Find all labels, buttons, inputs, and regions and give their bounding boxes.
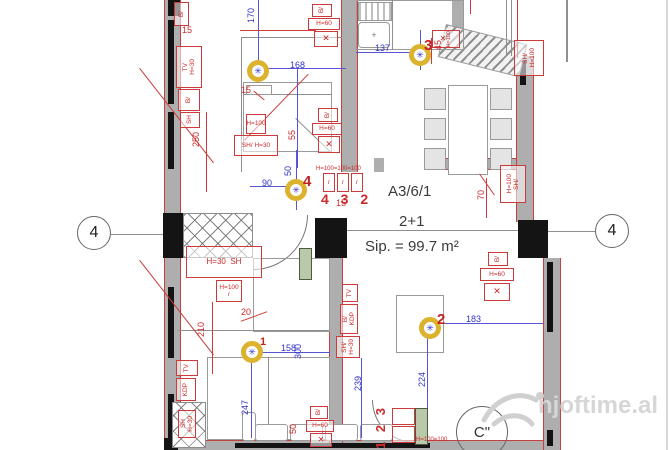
- h100-label: H=100: [446, 31, 452, 47]
- watermark-text: njoftime.al: [538, 392, 658, 420]
- h60-label: H=60: [316, 20, 332, 27]
- door-leaf-box: [392, 408, 415, 425]
- dining-table: [448, 85, 488, 175]
- h100-label: H=100: [246, 120, 265, 127]
- dim-red: 45: [434, 40, 443, 50]
- speaker-icon: ✕: [310, 433, 332, 447]
- annotation-box-h30-sh: H=30 SH: [186, 246, 262, 278]
- annotation-box-tv: TVH=30: [176, 46, 202, 88]
- dining-chair: [490, 88, 512, 110]
- dining-chair: [490, 118, 512, 140]
- h60-label: H=60: [489, 271, 505, 278]
- b-label: B/: [324, 112, 331, 118]
- dining-chair: [424, 88, 446, 110]
- grid-axis-line-right: [545, 231, 595, 232]
- dim-red: 250: [192, 132, 201, 147]
- dim-blue: 170: [247, 8, 256, 23]
- axis-number: 4: [608, 222, 617, 240]
- balcony-rail-line-2: [511, 0, 512, 56]
- window-right-1: [547, 262, 553, 332]
- b-label: B/: [342, 316, 349, 322]
- light-marker-bedroom: ✳: [247, 60, 269, 82]
- annotation-box-h60: H=60: [308, 18, 340, 30]
- hook-glyph: ɾ: [356, 179, 358, 186]
- sh-label: SH: [186, 115, 193, 124]
- dim-red: 50: [289, 424, 298, 434]
- window-left-1: [168, 20, 174, 104]
- h30-label: H=30: [254, 142, 270, 149]
- apartment-code: A3/6/1: [388, 183, 431, 200]
- apartment-layout: 2+1: [399, 213, 424, 230]
- annotation-box-sh-h100: SH/H=100: [514, 40, 544, 76]
- annotation-box-b: B/: [488, 252, 508, 266]
- cross-glyph: ✕: [322, 34, 330, 44]
- speaker-icon: ✕: [314, 31, 338, 47]
- cross-glyph: ✕: [325, 140, 333, 150]
- dim-red: 55: [288, 130, 297, 140]
- annotation-box-sh-h30: SH/H=30: [336, 336, 360, 358]
- sh-label: SH/: [341, 342, 348, 353]
- dim-line-red: [206, 112, 207, 192]
- floor-plan: + ✳ ✳ ✳ ✳ ✳ 3 4 1 2 170 16: [0, 0, 670, 450]
- grid-axis-marker-left: 4: [77, 216, 111, 250]
- tv-label: TV: [346, 289, 353, 297]
- annotation-box-kdp: KDP: [176, 378, 196, 401]
- grid-axis-line-left: [111, 234, 163, 235]
- edge-line-far-right: [566, 0, 568, 62]
- axis-number: 4: [90, 224, 99, 242]
- annotation-box-b: B/: [310, 406, 328, 419]
- dim-line: [251, 358, 252, 438]
- b-label: B/: [315, 409, 322, 415]
- light-symbol: ✳: [426, 323, 434, 334]
- b-label: B/: [318, 7, 325, 13]
- radiator-green: [299, 248, 312, 280]
- kdp-label: KDP: [182, 383, 189, 396]
- light-symbol: ✳: [248, 347, 256, 358]
- light-label-1: 1: [260, 337, 266, 348]
- sh-label: SH: [180, 419, 187, 428]
- dim-line: [258, 0, 259, 62]
- switch-numbers-top: 4 3 2: [321, 192, 372, 206]
- screenshot-edge: [666, 0, 668, 450]
- light-label-4: 4: [303, 174, 311, 189]
- sofa-cushion: [255, 424, 288, 441]
- column-right: [518, 220, 548, 258]
- light-label-3: 3: [424, 38, 432, 53]
- b-label: B/: [185, 97, 192, 103]
- dim-blue: 137: [375, 44, 390, 53]
- h100-label: H=100: [506, 174, 513, 193]
- speaker-icon: ✕: [484, 283, 510, 301]
- h30-label: H=30: [207, 258, 226, 267]
- h60-label: H=60: [312, 422, 328, 429]
- annotation-box-h60: H=60: [312, 123, 342, 135]
- dim-blue: 224: [418, 372, 427, 387]
- dim-blue: 239: [354, 376, 363, 391]
- kdp-label: KDP: [349, 312, 356, 325]
- light-symbol: ✳: [416, 50, 424, 61]
- column-mid: [315, 218, 347, 258]
- light-symbol: ✳: [254, 66, 262, 77]
- speaker-icon: ✕: [318, 136, 340, 153]
- hook-glyph: ɾ: [342, 179, 344, 186]
- switch-box: ɾ: [337, 173, 349, 192]
- window-bottom: [235, 443, 430, 448]
- annotation-box-b: B/: [312, 4, 332, 17]
- dim-red: 15: [182, 26, 192, 35]
- annotation-box-tv: TV: [342, 284, 358, 302]
- grid-axis-line-main: [347, 230, 518, 231]
- h100-label: H=100: [219, 284, 238, 291]
- h30-label: H=30: [348, 339, 355, 355]
- b-label: B/: [494, 256, 501, 262]
- sink-drainer: [358, 2, 392, 21]
- light-symbol: ✳: [292, 185, 300, 196]
- switch-box: ɾ: [323, 173, 335, 192]
- dim-blue: 247: [241, 400, 250, 415]
- bathroom-outline: [253, 258, 330, 332]
- cross-glyph: ✕: [318, 436, 325, 445]
- window-left-2: [168, 112, 174, 169]
- dim-blue: 50: [284, 166, 293, 176]
- dim-red: 20: [241, 308, 251, 317]
- annotation-box-sh-h100: H=100SH/: [500, 165, 526, 203]
- h30-label: H=30: [187, 416, 194, 432]
- cross-glyph: ✕: [493, 287, 501, 297]
- sh-label: SH: [230, 258, 241, 267]
- tv-label: TV: [182, 63, 189, 71]
- h60-label: H=60: [319, 125, 335, 132]
- light-label-2: 2: [437, 312, 445, 327]
- annotation-box-h60: H=60: [480, 268, 514, 281]
- sh-label: SH/: [513, 179, 520, 190]
- annotation-box-h100: H=100ɾ: [216, 280, 242, 302]
- kitchen-red-line: [240, 30, 316, 31]
- annotation-box-tv: TV: [176, 360, 198, 376]
- annotation-box-b: B/: [318, 108, 338, 122]
- balcony-rail-line-1: [506, 0, 507, 56]
- wall-loggia-jog: [374, 158, 384, 172]
- hook-glyph: ɾ: [328, 179, 330, 186]
- hook-glyph: ɾ: [228, 291, 230, 298]
- switch-heights: H=100=100=100: [316, 166, 361, 172]
- annotation-box-sh-h30: SH/ H=30: [234, 135, 278, 156]
- annotation-box-b: B/: [178, 89, 200, 111]
- dim-blue: 168: [290, 61, 305, 70]
- door-leaf-box: [392, 426, 415, 443]
- dim-red: 15: [241, 86, 251, 95]
- sofa-arm: [242, 412, 256, 441]
- apartment-area: Sip. = 99.7 m²: [365, 238, 459, 255]
- dim-red: 210: [197, 322, 206, 337]
- dim-red: 70: [477, 190, 486, 200]
- dim-blue: 183: [466, 315, 481, 324]
- sh-label: SH/: [522, 53, 529, 64]
- annotation-box-h100: H=100: [246, 114, 266, 134]
- b-label: B/: [178, 11, 185, 17]
- switch-box: ɾ: [351, 173, 363, 192]
- dim-line-red: [212, 302, 213, 374]
- annotation-box-h60: H=60: [306, 420, 334, 432]
- sh-label: SH/: [242, 142, 253, 149]
- dim-line: [430, 323, 543, 324]
- tv-label: TV: [183, 364, 190, 372]
- door-heights: H=100=100: [416, 437, 447, 443]
- annotation-box-sh-h30: SHH=30: [178, 410, 196, 438]
- dining-chair: [424, 148, 446, 170]
- annotation-box-sh: SH: [180, 112, 200, 128]
- dim-line: [268, 68, 346, 69]
- grid-axis-marker-right: 4: [595, 214, 629, 248]
- dining-chair: [424, 118, 446, 140]
- dim-blue: 300: [294, 344, 303, 359]
- annotation-box-small: B/: [174, 2, 189, 26]
- kitchen-counter-divider: [392, 0, 393, 50]
- red-line-top: [470, 0, 471, 14]
- annotation-box-kdp: B/KDP: [340, 304, 358, 334]
- h30-label: H=30: [189, 59, 196, 75]
- column-left: [163, 213, 183, 258]
- switch-numbers-bottom: 1 2 3: [374, 405, 387, 449]
- h100-label: H=100: [529, 48, 536, 67]
- dim-blue: 90: [262, 179, 272, 188]
- dim-line: [361, 358, 362, 438]
